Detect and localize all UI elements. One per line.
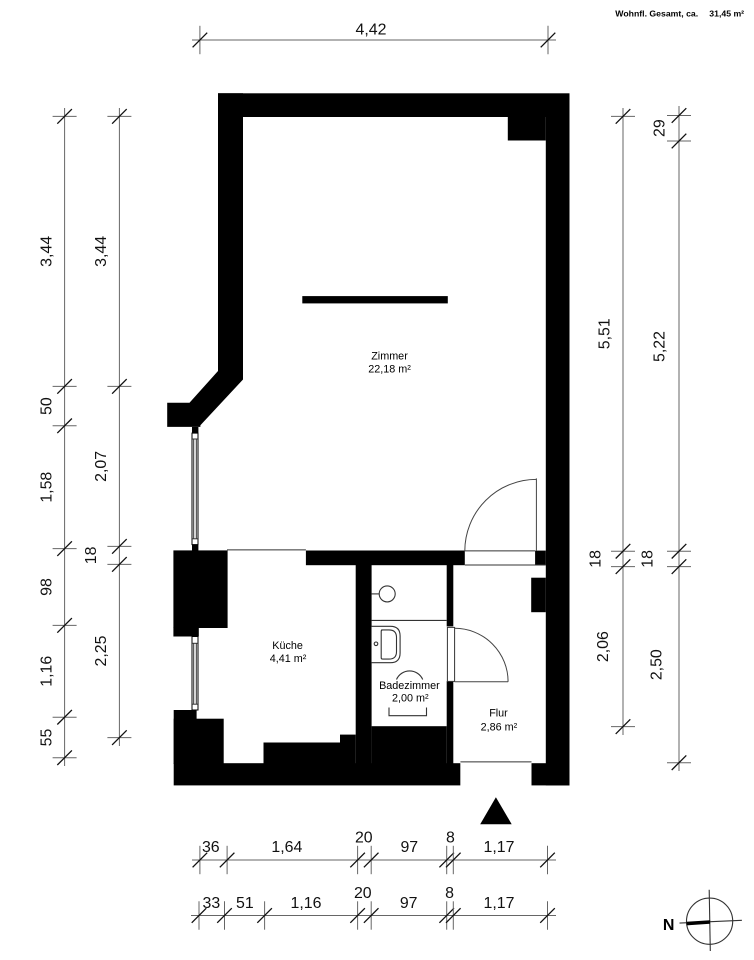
svg-text:1,64: 1,64	[271, 839, 302, 856]
svg-text:36: 36	[202, 839, 220, 856]
svg-text:18: 18	[640, 550, 657, 568]
svg-text:1,17: 1,17	[484, 839, 515, 856]
svg-text:8: 8	[446, 830, 455, 847]
svg-text:18: 18	[83, 546, 100, 564]
svg-text:20: 20	[355, 830, 373, 847]
svg-text:97: 97	[400, 895, 418, 912]
svg-text:33: 33	[203, 895, 221, 912]
svg-text:18: 18	[588, 550, 605, 568]
svg-text:55: 55	[39, 729, 56, 747]
svg-text:4,41 m²: 4,41 m²	[270, 653, 307, 665]
svg-text:Küche: Küche	[272, 640, 303, 652]
svg-text:N: N	[663, 917, 675, 934]
svg-text:5,22: 5,22	[652, 331, 669, 362]
svg-text:5,51: 5,51	[597, 318, 614, 349]
svg-text:2,07: 2,07	[93, 451, 110, 482]
svg-text:Badezimmer: Badezimmer	[379, 680, 440, 692]
svg-text:2,06: 2,06	[595, 631, 612, 662]
svg-text:2,86 m²: 2,86 m²	[481, 721, 518, 733]
svg-text:8: 8	[445, 885, 454, 902]
svg-text:2,50: 2,50	[649, 649, 666, 680]
svg-text:Flur: Flur	[489, 708, 508, 720]
svg-text:22,18 m²: 22,18 m²	[368, 364, 411, 376]
svg-text:1,16: 1,16	[39, 656, 56, 687]
svg-text:51: 51	[236, 895, 254, 912]
svg-text:20: 20	[354, 885, 372, 902]
svg-text:97: 97	[400, 839, 418, 856]
svg-text:Wohnfl. Gesamt, ca.: Wohnfl. Gesamt, ca.	[615, 8, 698, 18]
svg-text:3,44: 3,44	[93, 236, 110, 267]
svg-text:98: 98	[39, 578, 56, 596]
svg-text:50: 50	[39, 397, 56, 415]
svg-text:1,17: 1,17	[484, 895, 515, 912]
svg-text:29: 29	[652, 119, 669, 137]
svg-text:1,58: 1,58	[39, 472, 56, 503]
svg-text:1,16: 1,16	[291, 895, 322, 912]
svg-text:3,44: 3,44	[39, 236, 56, 267]
svg-text:Zimmer: Zimmer	[371, 351, 408, 363]
svg-text:4,42: 4,42	[356, 22, 387, 39]
svg-text:2,00 m²: 2,00 m²	[392, 693, 429, 705]
svg-text:31,45 m²: 31,45 m²	[709, 8, 744, 18]
svg-text:2,25: 2,25	[93, 635, 110, 666]
